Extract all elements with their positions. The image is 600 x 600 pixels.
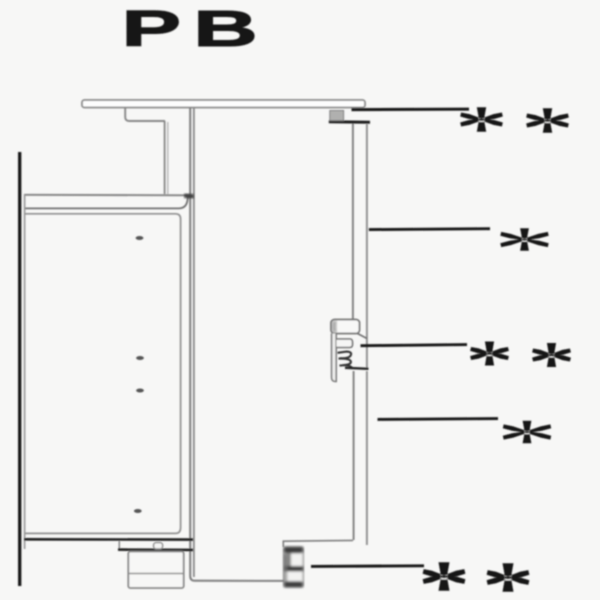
svg-text:P: P: [121, 1, 181, 58]
svg-text:B: B: [193, 1, 257, 58]
